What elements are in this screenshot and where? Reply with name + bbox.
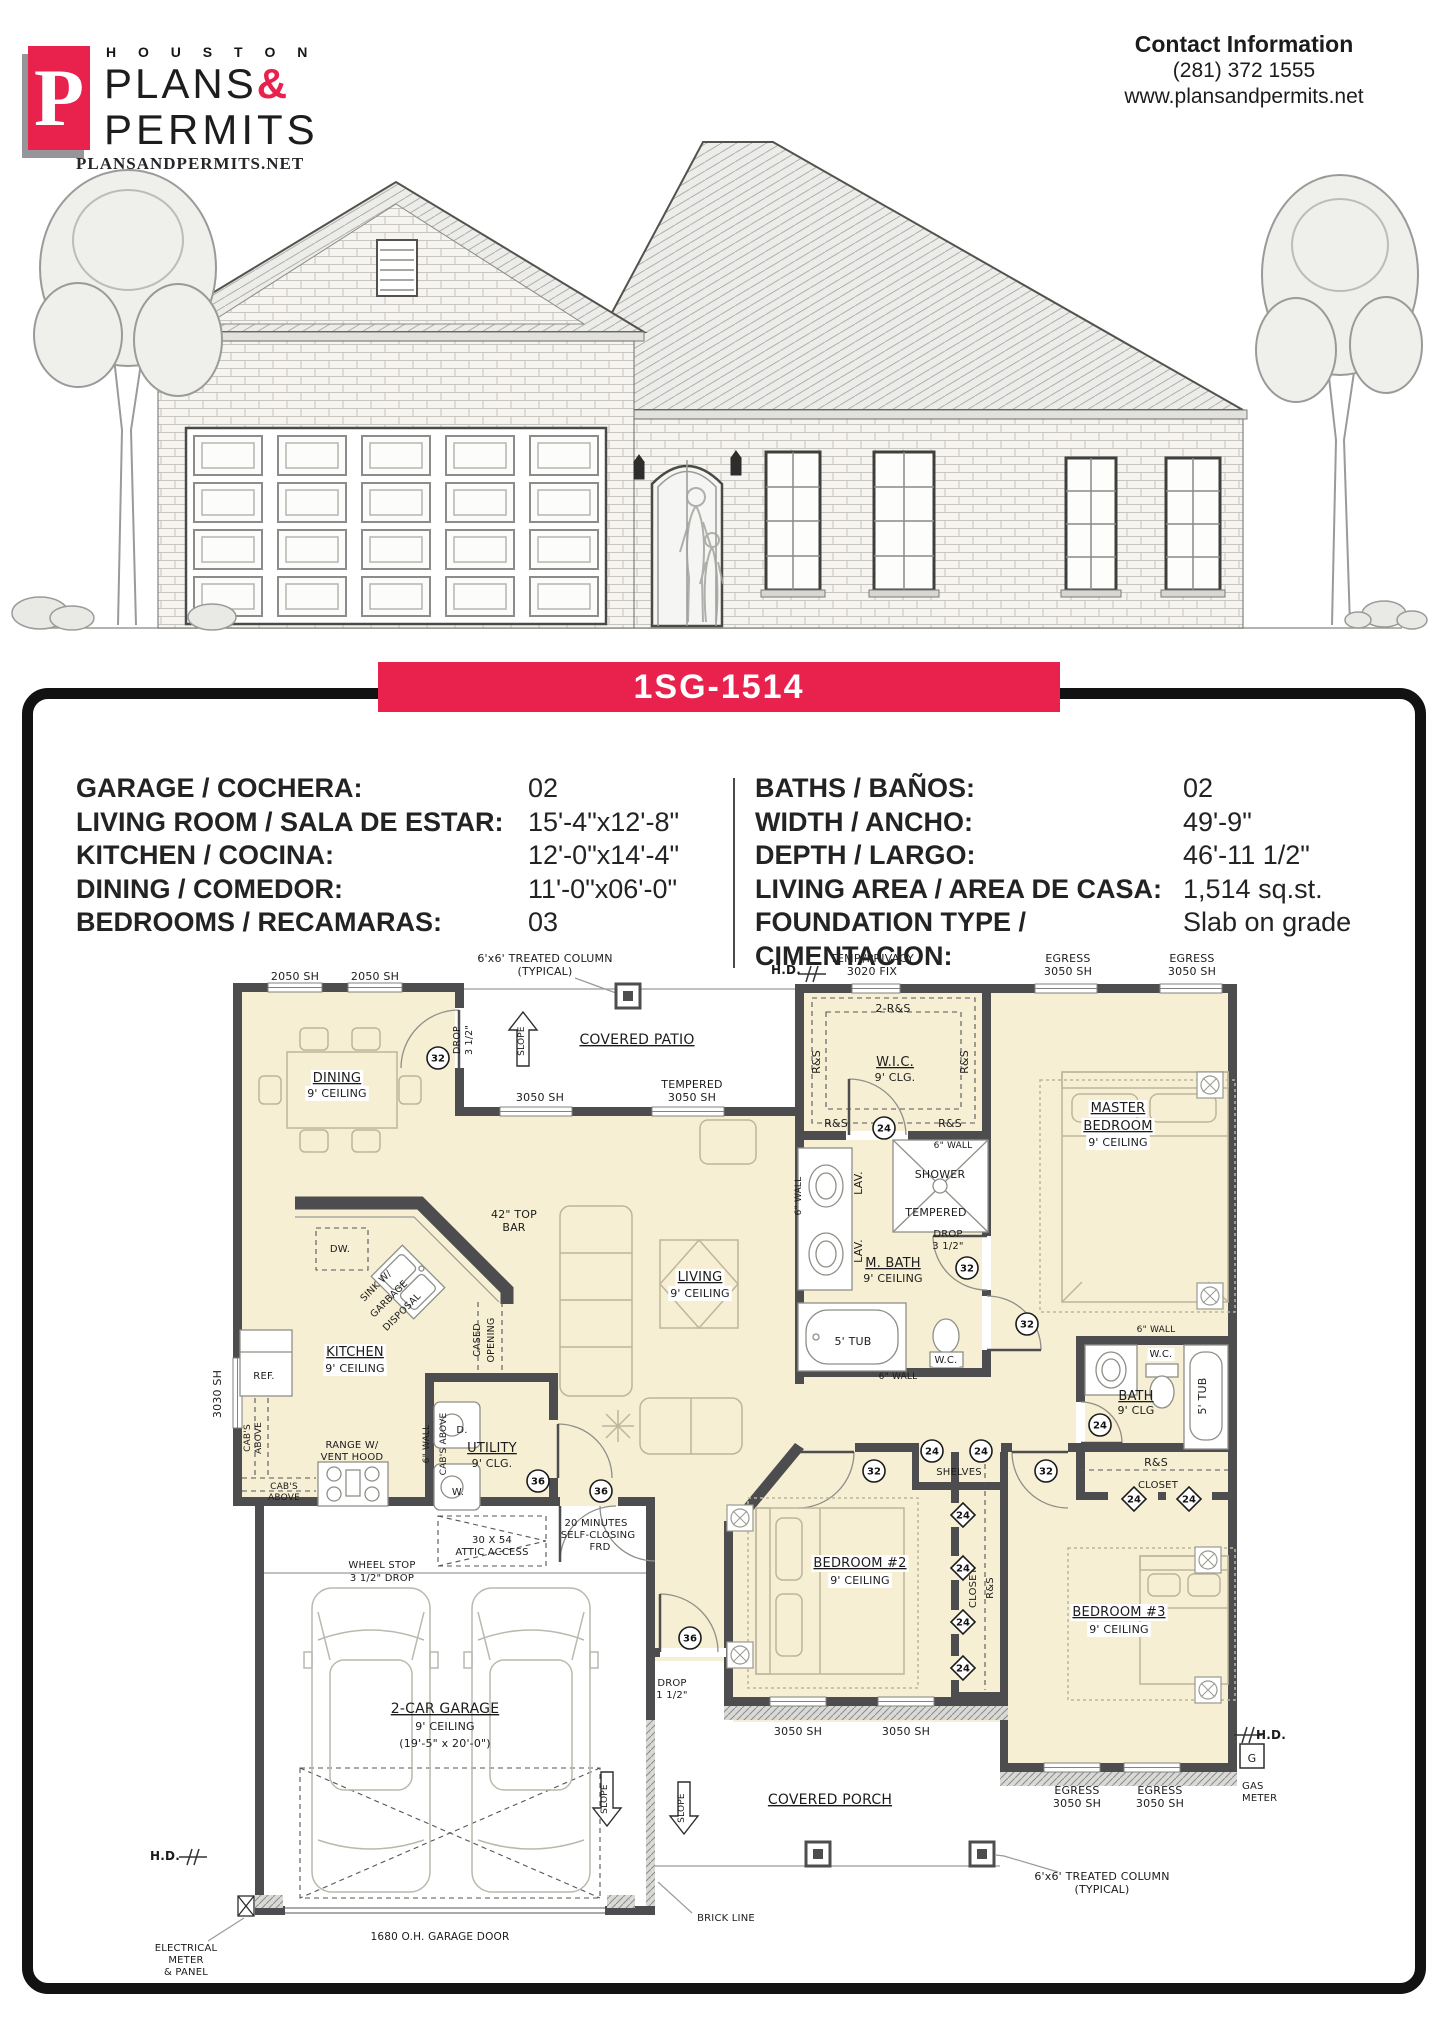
door-size-marker: 24: [921, 1440, 943, 1462]
spec-row: BATHS / BAÑOS:02: [755, 772, 1395, 806]
plan-label: SELF-CLOSING: [561, 1530, 636, 1541]
main-fascia: [556, 410, 1247, 419]
plan-label: 3050 SH: [882, 1725, 930, 1738]
plan-label: BEDROOM #3: [1072, 1605, 1165, 1620]
spec-row: DINING / COMEDOR:11'-0"x06'-0": [76, 873, 721, 907]
plan-label: EGRESS: [1137, 1784, 1182, 1797]
door-size-marker: 36: [590, 1480, 612, 1502]
plan-label: TEMPERED: [904, 1206, 966, 1219]
plan-label: R&S: [810, 1050, 823, 1074]
plan-label: FRD: [589, 1542, 610, 1553]
plan-label: R&S: [958, 1050, 971, 1074]
plan-label: 3050 SH: [1053, 1797, 1101, 1810]
plan-label: 3030 SH: [211, 1370, 224, 1418]
plan-label: R&S: [824, 1117, 848, 1130]
plan-label: 9' CEILING: [307, 1087, 367, 1100]
plan-label: 1680 O.H. GARAGE DOOR: [370, 1931, 509, 1943]
plan-label: 3 1/2": [932, 1241, 963, 1252]
plan-label: W.: [452, 1487, 464, 1498]
plan-label: 3 1/2": [464, 1025, 475, 1055]
door-size-marker: 32: [1035, 1460, 1057, 1482]
tree-right-icon: [1256, 175, 1422, 625]
plan-label: 3 1/2" DROP: [350, 1573, 414, 1584]
plan-label: (TYPICAL): [1074, 1883, 1129, 1896]
plan-label: BAR: [502, 1221, 525, 1234]
porch-column-icon: [970, 1842, 994, 1866]
fan-icon: [1195, 1547, 1221, 1573]
spec-row: BEDROOMS / RECAMARAS:03: [76, 906, 721, 940]
plan-id-banner: 1SG-1514: [378, 662, 1060, 712]
fan-icon: [1197, 1072, 1223, 1098]
hose-bib-icon: [179, 1849, 207, 1865]
architectural-drawing: 2050 SH2050 SH6'x6' TREATED COLUMN(TYPIC…: [0, 0, 1445, 2043]
plan-label: CLOSET: [1138, 1480, 1179, 1491]
plan-label: 2050 SH: [351, 970, 399, 983]
plan-label: (TYPICAL): [517, 965, 572, 978]
plan-label: ABOVE: [268, 1493, 300, 1503]
door-size-marker: 32: [1016, 1313, 1038, 1335]
spec-table-right: BATHS / BAÑOS:02 WIDTH / ANCHO:49'-9" DE…: [755, 772, 1395, 973]
front-elevation: [12, 142, 1427, 630]
door-size-marker: 24: [1089, 1414, 1111, 1436]
spec-row: LIVING ROOM / SALA DE ESTAR:15'-4"x12'-8…: [76, 806, 721, 840]
window-icon: [869, 452, 939, 597]
plan-label: 6" WALL: [422, 1425, 432, 1464]
spec-row: GARAGE / COCHERA:02: [76, 772, 721, 806]
plan-label: 20 MINUTES: [564, 1518, 627, 1529]
garage-door: [186, 428, 606, 624]
plan-label: M. BATH: [865, 1256, 920, 1271]
plan-label: METER: [1242, 1793, 1277, 1804]
plant-icon: [602, 1410, 634, 1442]
svg-text:32: 32: [1039, 1467, 1053, 1478]
spec-divider: [733, 778, 735, 968]
plan-label: 9' CEILING: [325, 1362, 385, 1375]
svg-text:24: 24: [1127, 1495, 1141, 1506]
plan-label: 6'x6' TREATED COLUMN: [1034, 1870, 1169, 1883]
plan-label: 2050 SH: [271, 970, 319, 983]
plan-label: 2-R&S: [875, 1002, 910, 1015]
spec-row: KITCHEN / COCINA:12'-0"x14'-4": [76, 839, 721, 873]
plan-label: VENT HOOD: [321, 1452, 384, 1463]
plan-label: 9' CEILING: [863, 1272, 923, 1285]
plan-label: 5' TUB: [834, 1335, 871, 1348]
plan-label: 9' CEILING: [670, 1287, 730, 1300]
plan-label: ABOVE: [254, 1422, 264, 1454]
bath2-vanity: [1085, 1345, 1137, 1395]
plan-label: 3050 SH: [516, 1091, 564, 1104]
porch-column-icon: [806, 1842, 830, 1866]
svg-text:24: 24: [956, 1511, 970, 1522]
plan-label: R&S: [985, 1577, 996, 1599]
plan-label: COVERED PORCH: [768, 1792, 892, 1808]
plan-label: SHELVES: [936, 1467, 982, 1478]
plan-label: BEDROOM #2: [813, 1556, 906, 1571]
spec-row: LIVING AREA / AREA DE CASA:1,514 sq.st.: [755, 873, 1395, 907]
plan-label: 3050 SH: [774, 1725, 822, 1738]
plan-label: ELECTRICAL: [155, 1943, 218, 1954]
plan-label: GAS: [1242, 1781, 1264, 1792]
plan-label: LIVING: [678, 1270, 723, 1285]
plan-id: 1SG-1514: [634, 668, 805, 707]
plan-label: (19'-5" x 20'-0"): [399, 1737, 491, 1750]
plan-label: LAV.: [852, 1239, 865, 1263]
plan-label: DROP: [933, 1229, 962, 1240]
window-icon: [1161, 458, 1225, 597]
plan-label: R&S: [1144, 1456, 1168, 1469]
svg-text:24: 24: [974, 1447, 988, 1458]
plan-label: W.C.: [935, 1355, 958, 1366]
plan-label: LAV.: [852, 1171, 865, 1195]
svg-text:24: 24: [877, 1124, 891, 1135]
svg-text:36: 36: [531, 1477, 545, 1488]
door-size-marker: 36: [527, 1470, 549, 1492]
plan-label: 30 X 54: [472, 1535, 512, 1546]
spec-row: DEPTH / LARGO:46'-11 1/2": [755, 839, 1395, 873]
door-size-marker: 32: [863, 1460, 885, 1482]
plan-label: D.: [456, 1425, 467, 1436]
svg-text:32: 32: [960, 1264, 974, 1275]
plan-label: SLOPE: [600, 1784, 610, 1814]
plan-label: 6'x6' TREATED COLUMN: [477, 952, 612, 965]
svg-text:24: 24: [956, 1564, 970, 1575]
refrigerator: [240, 1330, 292, 1396]
svg-text:36: 36: [683, 1634, 697, 1645]
plan-label: 5' TUB: [1196, 1377, 1209, 1414]
spec-row: WIDTH / ANCHO:49'-9": [755, 806, 1395, 840]
patio-column-icon: [616, 984, 640, 1008]
door-size-marker: 32: [427, 1047, 449, 1069]
electric-meter-icon: [238, 1896, 254, 1916]
fan-icon: [1195, 1677, 1221, 1703]
plan-label: 3050 SH: [668, 1091, 716, 1104]
spec-table-left: GARAGE / COCHERA:02 LIVING ROOM / SALA D…: [76, 772, 721, 940]
door-size-marker: 36: [679, 1627, 701, 1649]
door-size-marker: 24: [873, 1117, 895, 1139]
plan-label: BEDROOM: [1083, 1119, 1152, 1134]
window-icon: [1061, 458, 1121, 597]
spec-row: CIMENTACION:: [755, 940, 1395, 974]
plan-label: CASED: [472, 1323, 483, 1356]
plan-label: CAB'S: [270, 1482, 298, 1492]
plan-label: 6" WALL: [1137, 1325, 1176, 1335]
svg-text:24: 24: [1182, 1495, 1196, 1506]
plan-label: 9' CLG.: [875, 1071, 916, 1084]
plan-label: SLOPE: [677, 1793, 687, 1823]
plan-label: ATTIC ACCESS: [455, 1547, 528, 1558]
plan-label: 42" TOP: [491, 1208, 537, 1221]
plan-label: EGRESS: [1054, 1784, 1099, 1797]
plan-label: W.C.: [1150, 1349, 1173, 1360]
svg-text:32: 32: [431, 1054, 445, 1065]
plan-label: 9' CEILING: [830, 1574, 890, 1587]
plan-label: 3050 SH: [1136, 1797, 1184, 1810]
plan-label: UTILITY: [467, 1441, 517, 1456]
plan-label: H.D.: [1256, 1728, 1286, 1742]
main-roof: [560, 142, 1243, 410]
plan-label: 9' CLG: [1117, 1404, 1154, 1417]
fan-icon: [1197, 1283, 1223, 1309]
plan-label: DW.: [330, 1244, 350, 1255]
plan-label: CAB'S ABOVE: [439, 1412, 449, 1475]
plan-label: DROP: [452, 1026, 463, 1054]
svg-text:32: 32: [1020, 1320, 1034, 1331]
spec-row: FOUNDATION TYPE /Slab on grade: [755, 906, 1395, 940]
plan-label: RANGE W/: [326, 1440, 379, 1451]
plan-label: 9' CEILING: [1089, 1623, 1149, 1636]
svg-text:24: 24: [956, 1618, 970, 1629]
plan-label: 6" WALL: [794, 1177, 804, 1216]
range: [318, 1462, 388, 1506]
attic-vent-icon: [377, 240, 417, 296]
svg-text:24: 24: [925, 1447, 939, 1458]
door-size-marker: 32: [956, 1257, 978, 1279]
plan-label: 2-CAR GARAGE: [391, 1701, 500, 1717]
plan-label: R&S: [938, 1117, 962, 1130]
plan-label: 9' CEILING: [415, 1720, 475, 1733]
plan-label: BATH: [1118, 1389, 1153, 1404]
fan-icon: [727, 1505, 753, 1531]
plan-label: H.D.: [150, 1849, 180, 1863]
door-size-marker: 24: [970, 1440, 992, 1462]
plan-label: DROP: [657, 1678, 686, 1689]
fan-icon: [727, 1642, 753, 1668]
plan-label: METER: [168, 1955, 203, 1966]
plan-label: DINING: [313, 1071, 361, 1086]
plan-label: COVERED PATIO: [579, 1032, 694, 1048]
plan-label: WHEEL STOP: [348, 1560, 415, 1571]
plan-label: 1 1/2": [656, 1690, 687, 1701]
plan-label: 6" WALL: [934, 1141, 973, 1151]
plan-label: 9' CEILING: [1088, 1136, 1148, 1149]
plan-label: SLOPE: [517, 1026, 527, 1056]
svg-text:36: 36: [594, 1487, 608, 1498]
plan-label: CAB'S: [243, 1424, 253, 1452]
floor-plan: 2050 SH2050 SH6'x6' TREATED COLUMN(TYPIC…: [150, 952, 1286, 1978]
plan-label: 9' CLG.: [472, 1457, 513, 1470]
plan-label: BRICK LINE: [697, 1913, 755, 1924]
svg-text:24: 24: [956, 1664, 970, 1675]
svg-text:24: 24: [1093, 1421, 1107, 1432]
plan-label: & PANEL: [164, 1967, 208, 1978]
mbath-vanity: [798, 1148, 852, 1290]
plan-label: W.I.C.: [876, 1055, 914, 1070]
plan-label: OPENING: [486, 1318, 497, 1363]
plan-label: 6" WALL: [879, 1372, 918, 1382]
svg-text:32: 32: [867, 1467, 881, 1478]
plan-label: KITCHEN: [326, 1345, 384, 1360]
plan-label: TEMPERED: [660, 1078, 722, 1091]
plan-label: G: [1248, 1752, 1257, 1765]
plan-label: REF.: [253, 1371, 274, 1382]
plan-sheet-page: { "header": { "logo": { "mark": "P", "ho…: [0, 0, 1445, 2043]
window-icon: [761, 452, 825, 597]
plan-label: MASTER: [1091, 1101, 1146, 1116]
plan-label: SHOWER: [915, 1168, 966, 1181]
